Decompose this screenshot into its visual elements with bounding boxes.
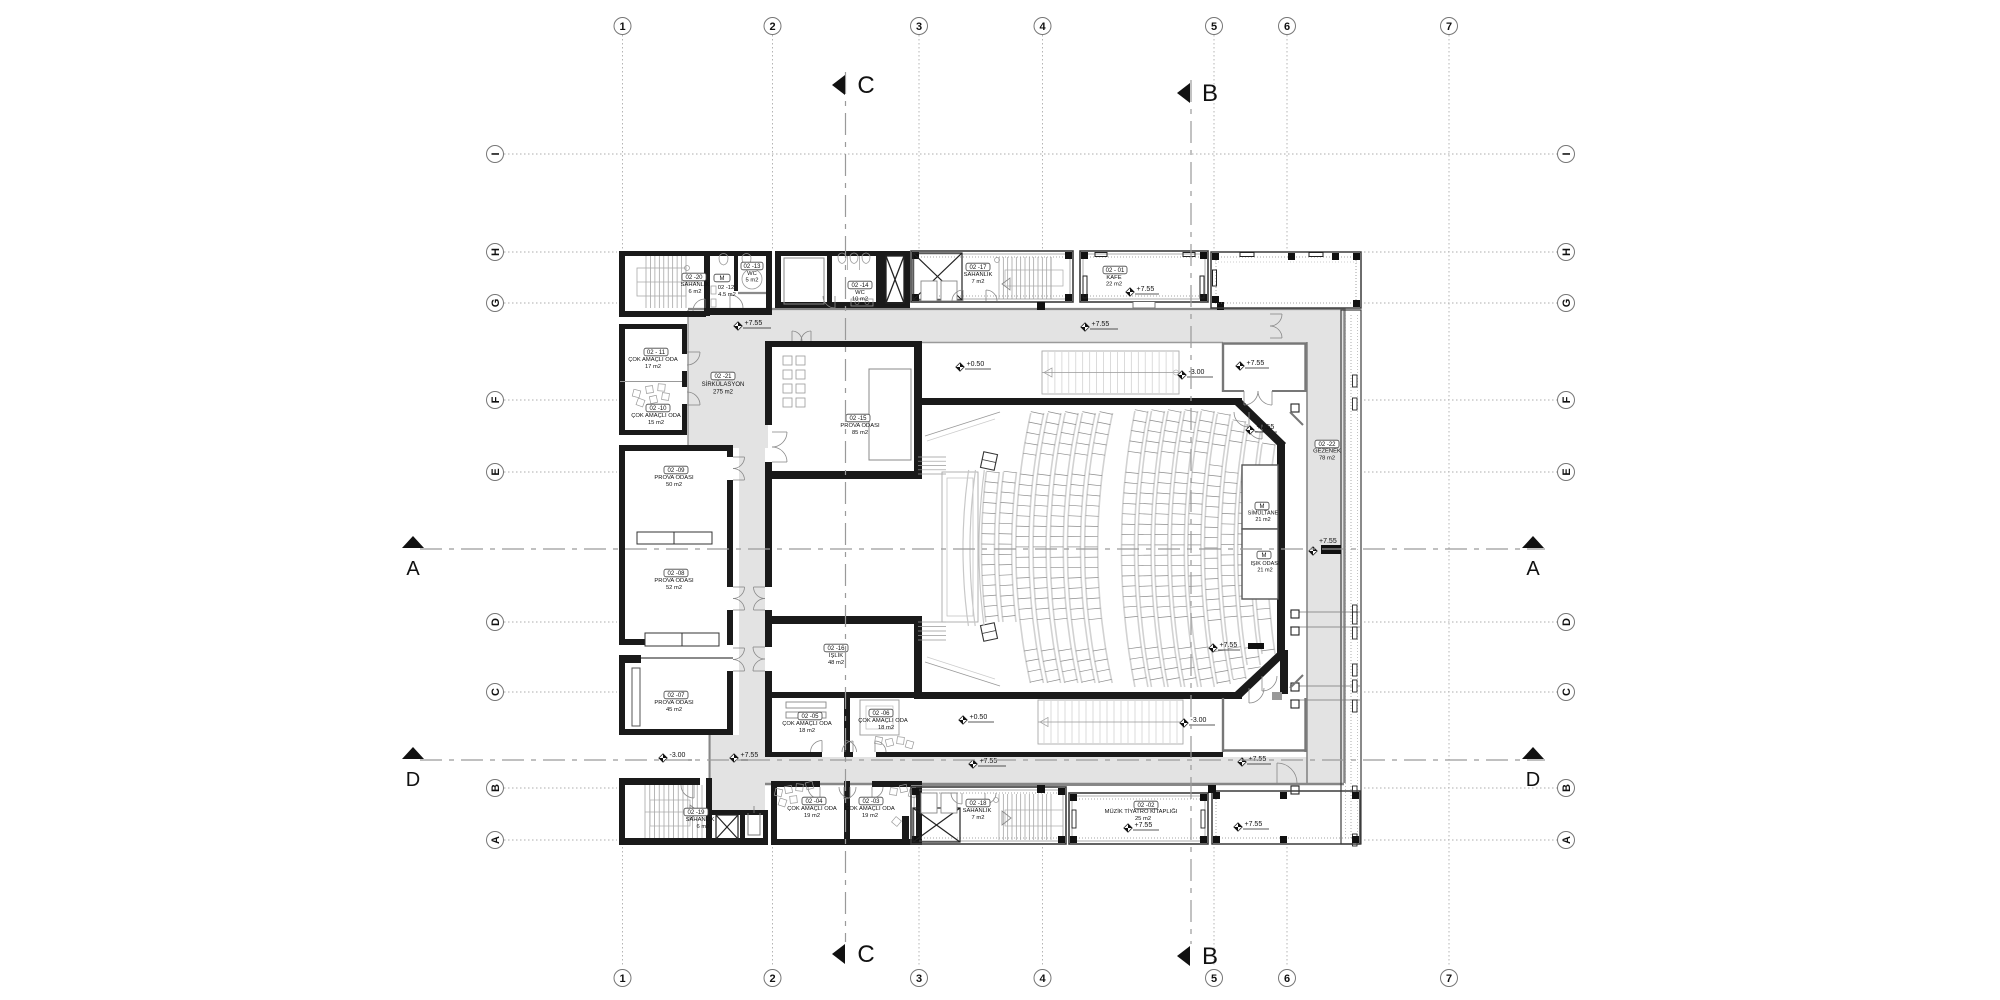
svg-text:02 -22: 02 -22 xyxy=(1318,442,1336,448)
svg-text:85 m2: 85 m2 xyxy=(852,430,868,436)
svg-text:6: 6 xyxy=(1284,973,1290,985)
svg-text:+7.55: +7.55 xyxy=(1135,822,1153,829)
svg-text:A: A xyxy=(1526,558,1540,580)
svg-text:PROVA ODASI: PROVA ODASI xyxy=(654,700,694,706)
svg-text:1: 1 xyxy=(619,973,625,985)
svg-text:21 m2: 21 m2 xyxy=(1255,517,1270,523)
svg-text:02 -17: 02 -17 xyxy=(969,265,987,271)
svg-text:+7.55: +7.55 xyxy=(1220,642,1238,649)
svg-text:SAHANLIK: SAHANLIK xyxy=(963,808,992,814)
svg-text:6 m2: 6 m2 xyxy=(689,289,702,295)
svg-text:PROVA ODASI: PROVA ODASI xyxy=(654,475,694,481)
svg-text:19 m2: 19 m2 xyxy=(804,813,820,819)
svg-text:10 m2: 10 m2 xyxy=(852,297,868,303)
svg-text:02 -21: 02 -21 xyxy=(714,374,732,380)
svg-text:M: M xyxy=(720,276,725,282)
svg-text:+0.50: +0.50 xyxy=(970,714,988,721)
svg-text:02 -04: 02 -04 xyxy=(805,799,823,805)
svg-text:02 - 11: 02 - 11 xyxy=(647,350,666,356)
svg-text:ÇOK AMAÇLI ODA: ÇOK AMAÇLI ODA xyxy=(631,413,681,419)
svg-text:+7.55: +7.55 xyxy=(1257,424,1275,431)
svg-text:-3.00: -3.00 xyxy=(670,752,686,759)
svg-text:+7.55: +7.55 xyxy=(980,758,998,765)
svg-text:GEZENEK: GEZENEK xyxy=(1313,449,1341,455)
svg-text:50 m2: 50 m2 xyxy=(666,482,682,488)
svg-text:02 -05: 02 -05 xyxy=(801,714,819,720)
svg-text:PROVA ODASI: PROVA ODASI xyxy=(654,578,694,584)
svg-text:A: A xyxy=(1561,836,1573,844)
svg-text:A: A xyxy=(406,558,420,580)
svg-text:A: A xyxy=(490,836,502,844)
svg-text:I: I xyxy=(1561,152,1573,155)
svg-text:5: 5 xyxy=(1211,21,1217,33)
svg-text:+0.50: +0.50 xyxy=(967,361,985,368)
svg-text:02 -12: 02 -12 xyxy=(718,285,734,291)
svg-text:48 m2: 48 m2 xyxy=(828,660,844,666)
svg-text:2: 2 xyxy=(769,21,775,33)
svg-text:WC: WC xyxy=(747,271,757,277)
svg-text:02 -20: 02 -20 xyxy=(685,275,703,281)
svg-text:02 -18: 02 -18 xyxy=(969,801,987,807)
svg-text:4.5 m2: 4.5 m2 xyxy=(718,292,736,298)
svg-text:B: B xyxy=(1561,784,1573,792)
svg-text:D: D xyxy=(406,769,420,791)
svg-text:C: C xyxy=(1561,688,1573,696)
svg-text:02 - 01: 02 - 01 xyxy=(1106,268,1125,274)
svg-text:C: C xyxy=(857,941,874,968)
svg-text:ÇOK AMAÇLI ODA: ÇOK AMAÇLI ODA xyxy=(782,721,832,727)
svg-text:6: 6 xyxy=(1284,21,1290,33)
svg-text:B: B xyxy=(1202,943,1218,970)
svg-text:02 -09: 02 -09 xyxy=(667,468,685,474)
svg-text:E: E xyxy=(1561,468,1573,475)
svg-text:H: H xyxy=(490,248,502,256)
svg-text:İŞLİK: İŞLİK xyxy=(829,652,843,659)
svg-text:F: F xyxy=(490,396,502,403)
svg-text:52 m2: 52 m2 xyxy=(666,585,682,591)
svg-text:SAHANLIK: SAHANLIK xyxy=(686,817,715,823)
svg-text:C: C xyxy=(857,72,874,99)
svg-text:3: 3 xyxy=(916,21,922,33)
svg-text:7 m2: 7 m2 xyxy=(972,815,985,821)
svg-text:02 -13: 02 -13 xyxy=(743,264,761,270)
svg-text:3: 3 xyxy=(916,973,922,985)
svg-text:SAHANLIK: SAHANLIK xyxy=(681,282,710,288)
svg-text:02 -14: 02 -14 xyxy=(851,283,869,289)
svg-text:7: 7 xyxy=(1446,21,1452,33)
svg-text:+7.55: +7.55 xyxy=(1319,538,1337,545)
svg-text:KAFE: KAFE xyxy=(1106,275,1121,281)
svg-text:6 m2: 6 m2 xyxy=(697,824,710,830)
svg-text:F: F xyxy=(1561,396,1573,403)
svg-text:+7.55: +7.55 xyxy=(1092,321,1110,328)
svg-text:5: 5 xyxy=(1211,973,1217,985)
svg-text:B: B xyxy=(490,784,502,792)
svg-text:5 m2: 5 m2 xyxy=(746,278,759,284)
svg-text:IŞIK ODASI: IŞIK ODASI xyxy=(1250,561,1280,567)
svg-text:02 -19: 02 -19 xyxy=(687,810,705,816)
svg-text:18 m2: 18 m2 xyxy=(878,725,894,731)
svg-text:I: I xyxy=(490,152,502,155)
svg-text:45 m2: 45 m2 xyxy=(666,707,682,713)
svg-text:78 m2: 78 m2 xyxy=(1319,456,1335,462)
svg-text:18 m2: 18 m2 xyxy=(799,728,815,734)
svg-text:SAHANLIK: SAHANLIK xyxy=(964,272,993,278)
svg-text:D: D xyxy=(1526,769,1540,791)
svg-text:ÇOK AMAÇLI ODA: ÇOK AMAÇLI ODA xyxy=(787,806,837,812)
svg-text:PROVA ODASI: PROVA ODASI xyxy=(840,423,880,429)
svg-text:ÇOK AMAÇLI ODA: ÇOK AMAÇLI ODA xyxy=(845,806,895,812)
svg-text:4: 4 xyxy=(1039,21,1046,33)
svg-text:+7.55: +7.55 xyxy=(1247,360,1265,367)
svg-text:21 m2: 21 m2 xyxy=(1257,568,1272,574)
svg-text:-3.00: -3.00 xyxy=(1191,717,1207,724)
svg-text:02 -06: 02 -06 xyxy=(872,711,890,717)
svg-text:B: B xyxy=(1202,80,1218,107)
svg-text:+7.55: +7.55 xyxy=(741,752,759,759)
svg-text:22 m2: 22 m2 xyxy=(1106,282,1122,288)
svg-text:02 -16: 02 -16 xyxy=(827,646,845,652)
svg-text:+7.55: +7.55 xyxy=(1249,756,1267,763)
svg-text:02 -10: 02 -10 xyxy=(649,406,667,412)
svg-text:19 m2: 19 m2 xyxy=(862,813,878,819)
svg-text:02 -15: 02 -15 xyxy=(849,416,867,422)
svg-text:+7.55: +7.55 xyxy=(1245,821,1263,828)
svg-text:02 -07: 02 -07 xyxy=(667,693,685,699)
svg-text:ÇOK AMAÇLI ODA: ÇOK AMAÇLI ODA xyxy=(858,718,908,724)
svg-text:1: 1 xyxy=(619,21,625,33)
svg-text:M: M xyxy=(1262,553,1267,559)
svg-text:02 -08: 02 -08 xyxy=(667,571,685,577)
svg-text:SİRKÜLASYON: SİRKÜLASYON xyxy=(702,381,745,388)
svg-text:15 m2: 15 m2 xyxy=(648,420,664,426)
svg-text:M: M xyxy=(1260,504,1265,510)
svg-text:2: 2 xyxy=(769,973,775,985)
svg-text:SİMÜLTANE: SİMÜLTANE xyxy=(1248,510,1279,517)
svg-text:275 m2: 275 m2 xyxy=(713,390,734,396)
svg-text:7: 7 xyxy=(1446,973,1452,985)
svg-text:17 m2: 17 m2 xyxy=(645,364,661,370)
svg-text:G: G xyxy=(1561,299,1573,308)
svg-text:WC: WC xyxy=(855,290,865,296)
svg-text:+7.55: +7.55 xyxy=(1137,286,1155,293)
svg-text:H: H xyxy=(1561,248,1573,256)
svg-text:D: D xyxy=(490,618,502,626)
svg-text:MÜZİK TİYATRO KİTAPLIĞI: MÜZİK TİYATRO KİTAPLIĞI xyxy=(1105,808,1178,815)
svg-text:ÇOK AMAÇLI ODA: ÇOK AMAÇLI ODA xyxy=(628,357,678,363)
svg-text:C: C xyxy=(490,688,502,696)
svg-text:02 -03: 02 -03 xyxy=(862,799,880,805)
svg-text:E: E xyxy=(490,468,502,475)
svg-text:4: 4 xyxy=(1039,973,1046,985)
svg-text:+7.55: +7.55 xyxy=(745,320,763,327)
svg-text:D: D xyxy=(1561,618,1573,626)
svg-text:G: G xyxy=(490,299,502,308)
svg-text:7 m2: 7 m2 xyxy=(972,279,985,285)
